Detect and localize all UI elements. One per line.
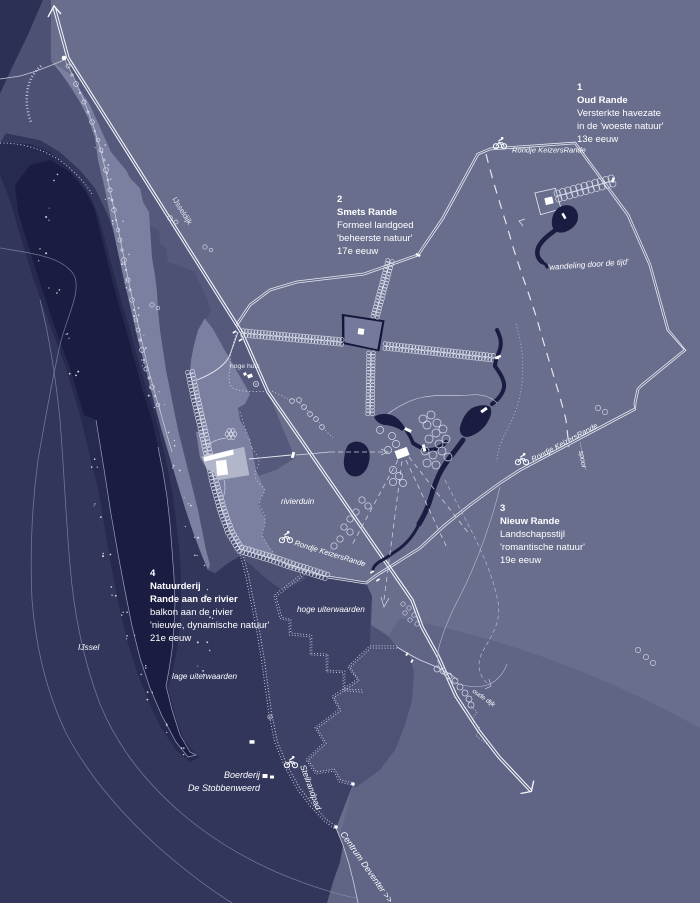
svg-text:4: 4 — [150, 568, 156, 579]
svg-text:lage uiterwaarden: lage uiterwaarden — [172, 672, 238, 681]
svg-text:Landschapsstijl: Landschapsstijl — [500, 529, 565, 540]
svg-text:Smets Rande: Smets Rande — [337, 207, 397, 218]
svg-text:3: 3 — [500, 503, 505, 514]
svg-text:Rande aan de rivier: Rande aan de rivier — [150, 594, 238, 605]
svg-text:'beheerste natuur': 'beheerste natuur' — [337, 233, 413, 244]
svg-text:Boerderij: Boerderij — [224, 770, 261, 780]
svg-text:21e eeuw: 21e eeuw — [150, 633, 191, 644]
svg-text:13e eeuw: 13e eeuw — [577, 134, 618, 145]
svg-text:Oud Rande: Oud Rande — [577, 95, 628, 106]
svg-text:in de 'woeste natuur': in de 'woeste natuur' — [577, 121, 664, 132]
svg-text:Formeel landgoed: Formeel landgoed — [337, 220, 414, 231]
svg-text:17e eeuw: 17e eeuw — [337, 246, 378, 257]
svg-text:Versterkte havezate: Versterkte havezate — [577, 108, 661, 119]
svg-text:1: 1 — [577, 82, 583, 93]
svg-text:rivierduin: rivierduin — [281, 497, 315, 506]
svg-text:Rondje KeizersRande: Rondje KeizersRande — [512, 146, 586, 155]
svg-text:19e eeuw: 19e eeuw — [500, 555, 541, 566]
svg-text:Natuurderij: Natuurderij — [150, 581, 201, 592]
svg-text:Nieuw Rande: Nieuw Rande — [500, 516, 560, 527]
svg-text:hoge uiterwaarden: hoge uiterwaarden — [297, 605, 365, 614]
svg-text:hoge huis: hoge huis — [230, 363, 260, 370]
svg-text:De Stobbenweerd: De Stobbenweerd — [188, 783, 261, 793]
svg-text:IJssel: IJssel — [78, 642, 101, 652]
svg-text:2: 2 — [337, 194, 342, 205]
svg-text:'romantische natuur': 'romantische natuur' — [500, 542, 585, 553]
svg-text:balkon aan de rivier: balkon aan de rivier — [150, 607, 233, 618]
svg-text:'nieuwe, dynamische natuur': 'nieuwe, dynamische natuur' — [150, 620, 269, 631]
